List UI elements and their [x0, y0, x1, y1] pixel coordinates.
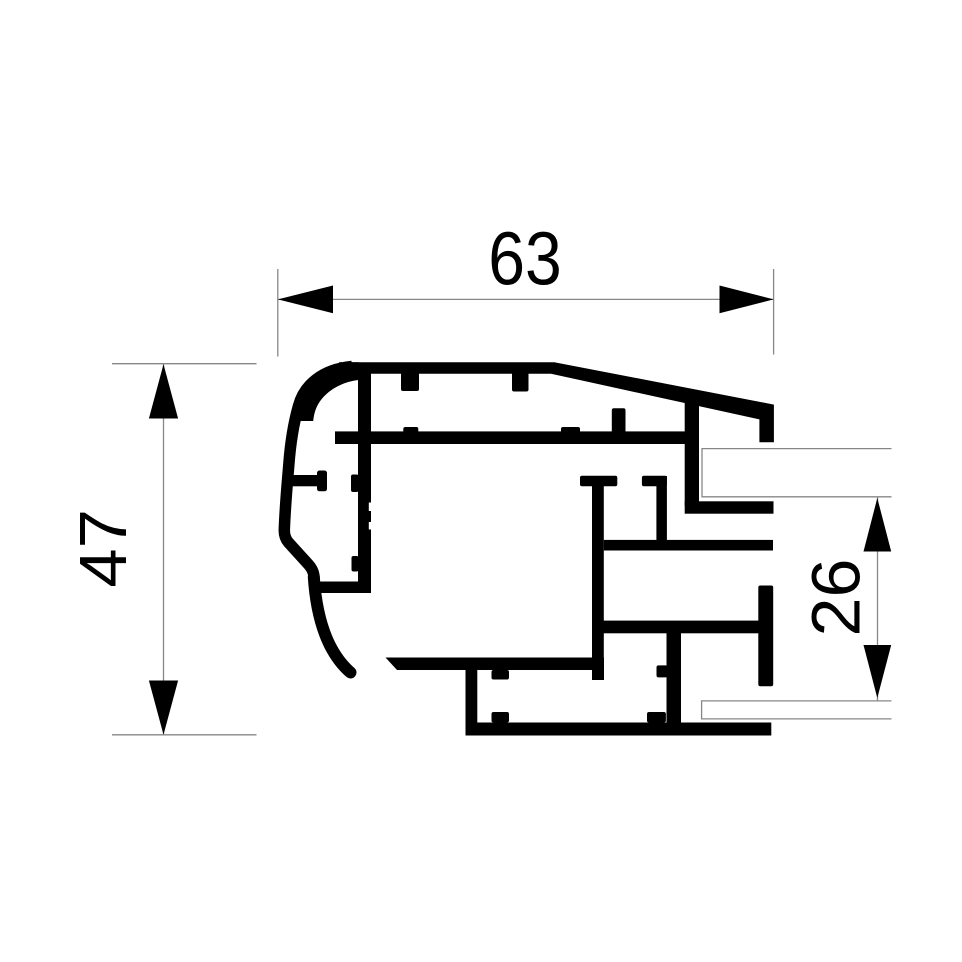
svg-text:26: 26: [798, 559, 875, 637]
svg-text:63: 63: [488, 217, 562, 301]
svg-text:47: 47: [66, 509, 141, 588]
